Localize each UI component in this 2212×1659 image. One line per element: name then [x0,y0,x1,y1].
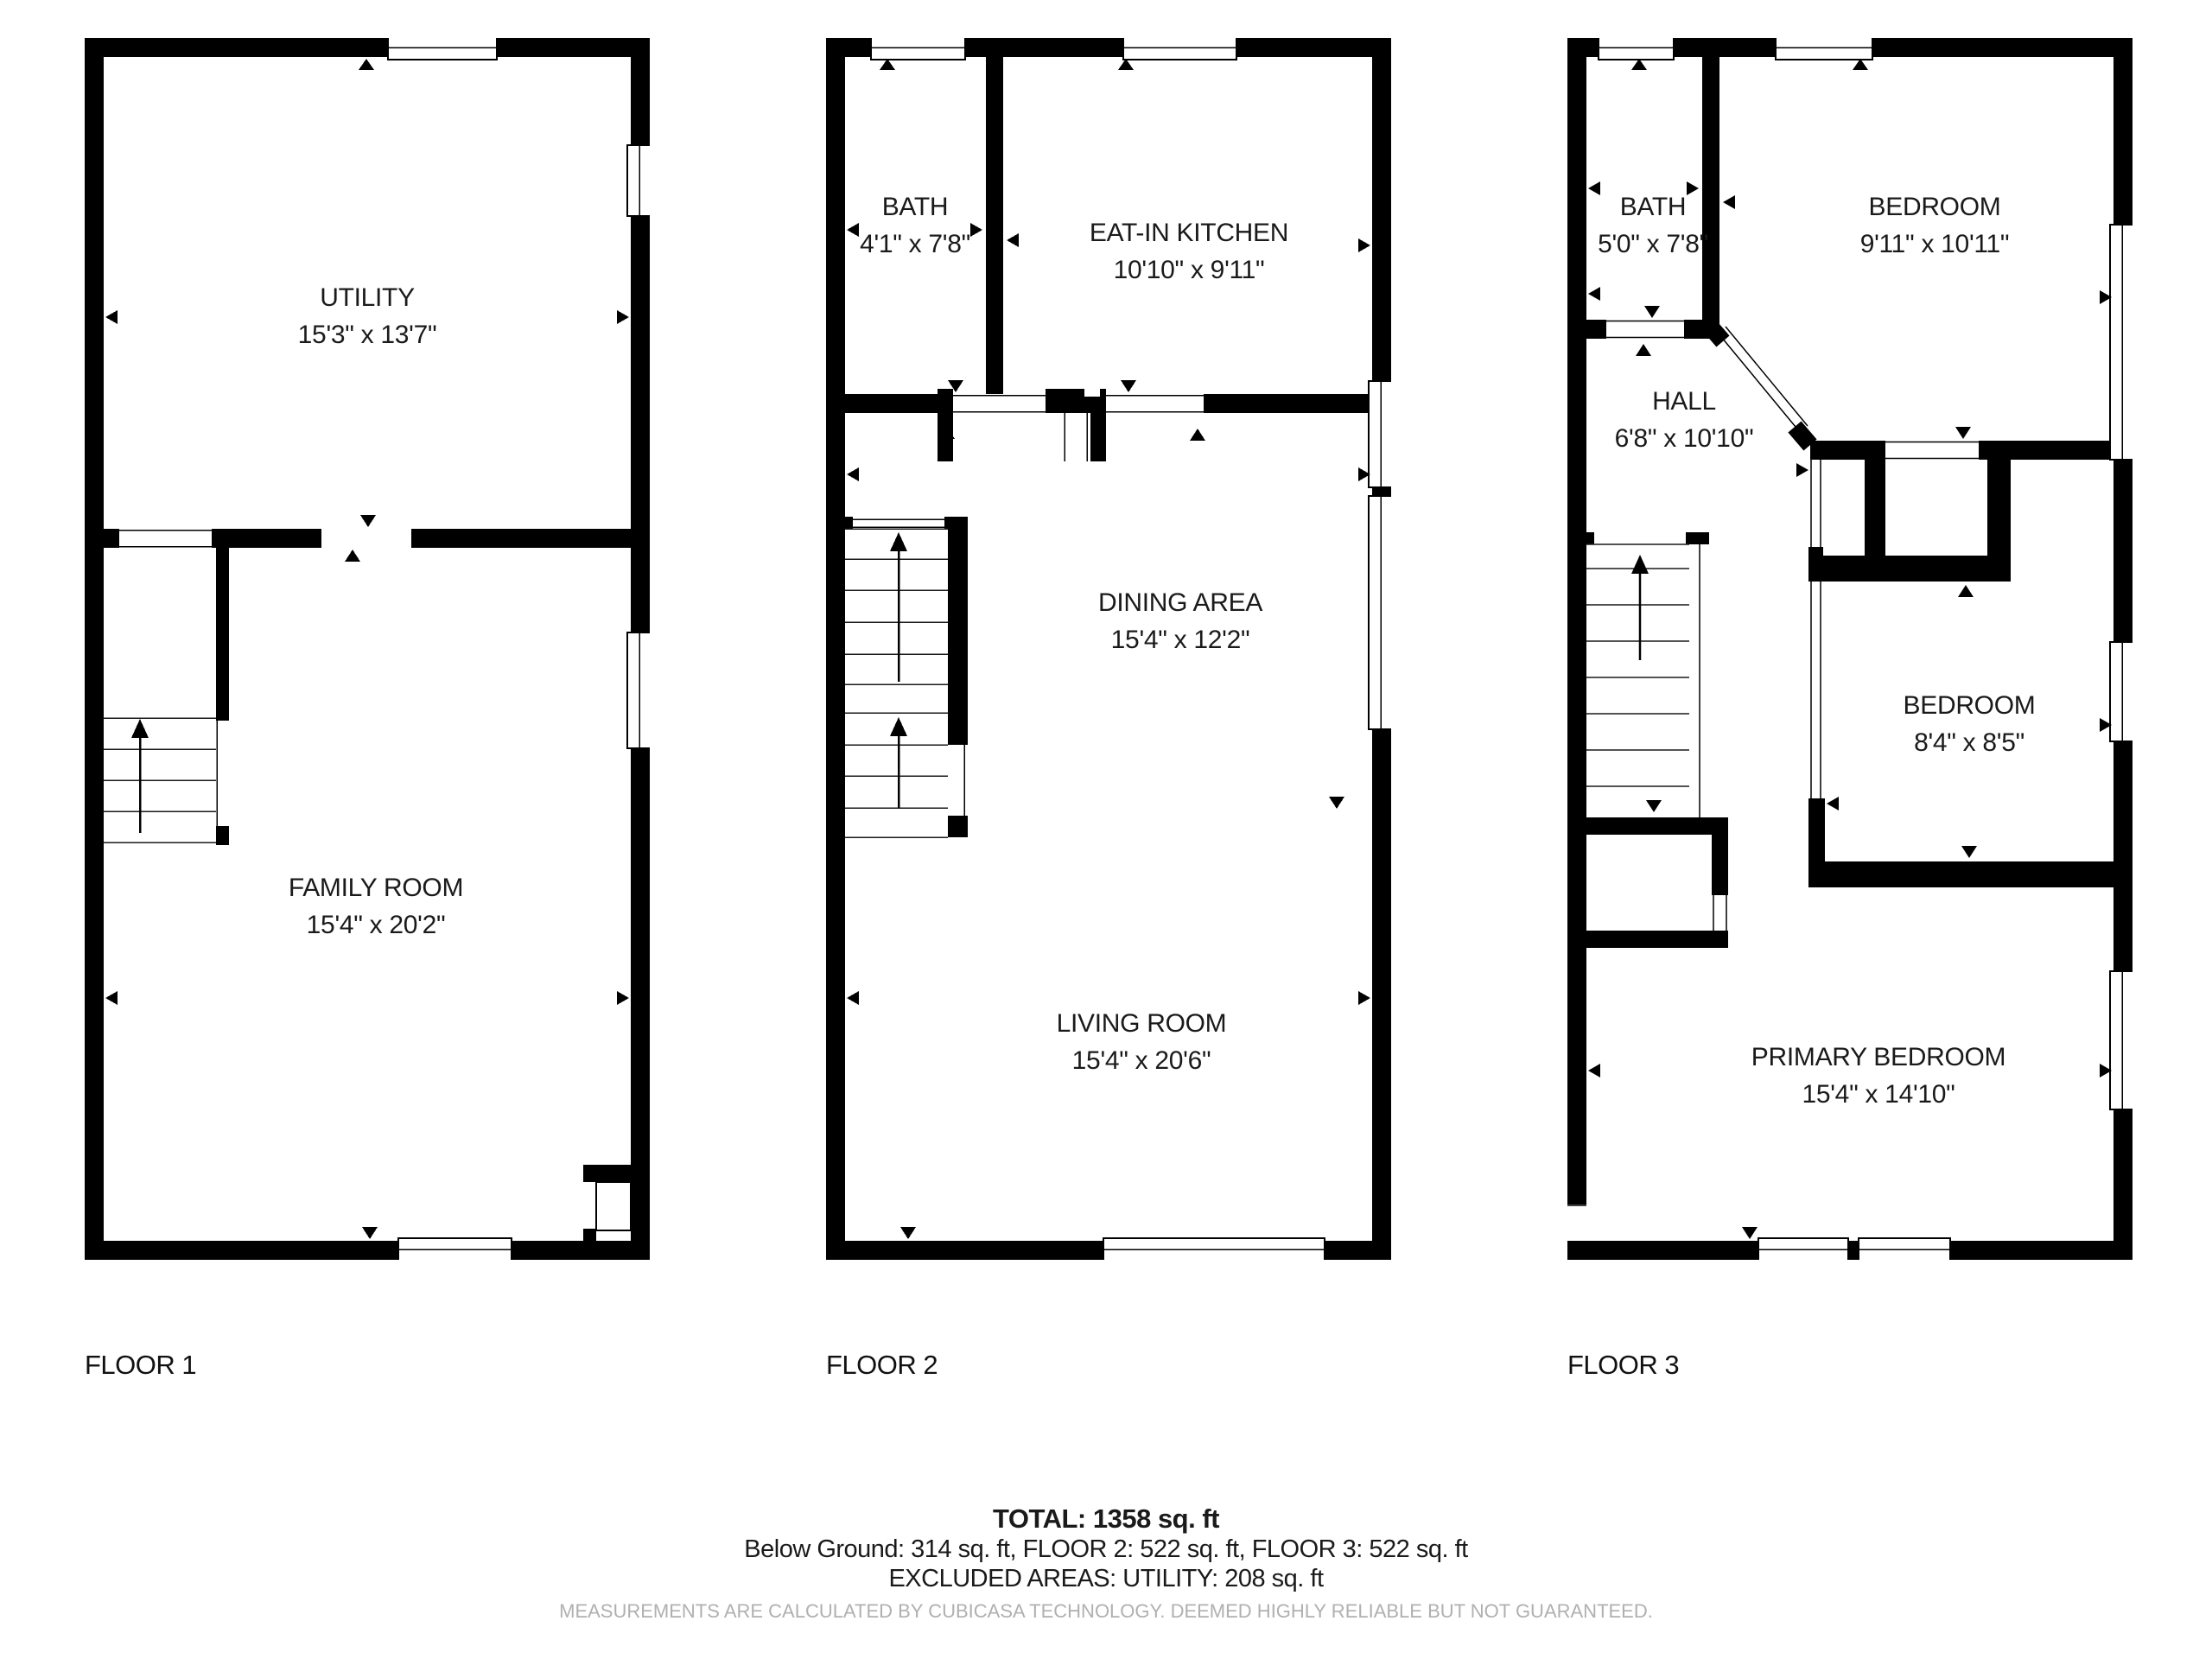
stairs-up-arrow [131,719,149,738]
door-marker-icon [1190,429,1205,441]
room-label-bedroom-2: BEDROOM [1904,691,2036,720]
room-label-family-room: FAMILY ROOM [289,874,463,902]
room-label-living-room: LIVING ROOM [1057,1009,1227,1038]
window [1859,1238,1950,1260]
room-dims-living-room: 15'4" x 20'6" [1072,1046,1211,1075]
dim-arrow-icon [617,310,629,324]
floor1-markers [105,59,629,1239]
floorplan-page: { "floors": [ { "label": "FLOOR 1", "roo… [0,0,2212,1659]
dim-arrow-icon [847,467,859,481]
dim-arrow-icon [1796,463,1808,477]
floor1-room-labels: UTILITY 15'3" x 13'7" FAMILY ROOM 15'4" … [289,283,463,939]
room-dims-hall: 6'8" x 10'10" [1615,424,1754,453]
room-label-utility: UTILITY [320,283,415,312]
dim-arrow-icon [105,991,118,1005]
floor1-windows [388,38,650,1260]
stairs-icon [104,718,217,842]
disclaimer-text: MEASUREMENTS ARE CALCULATED BY CUBICASA … [0,1600,2212,1623]
stairs-icon [1586,544,1700,817]
window-marker-icon [359,59,374,70]
door-marker-icon [1742,1227,1758,1239]
dim-arrow-icon [1827,797,1839,810]
floor-3-caption: FLOOR 3 [1567,1350,1679,1381]
window [1103,1238,1325,1260]
dim-arrow-icon [1358,991,1370,1005]
dim-arrow-icon [1588,1064,1600,1077]
dim-arrow-icon [1007,233,1019,247]
window [1369,381,1391,487]
floor-1-caption: FLOOR 1 [85,1350,196,1381]
window [388,38,497,60]
room-dims-bath: 4'1" x 7'8" [860,230,970,258]
total-area: TOTAL: 1358 sq. ft [0,1505,2212,1532]
door-marker-icon [1121,380,1136,392]
door-marker-icon [362,1227,378,1239]
floor-plan-3: BATH 5'0" x 7'8" BEDROOM 9'11" x 10'11" … [1567,38,2133,1260]
floor3-walls [1567,38,2133,1260]
window [871,38,965,60]
dim-arrow-icon [1687,181,1699,195]
opening-marker-icon [345,550,360,562]
dim-arrow-icon [617,991,629,1005]
door-marker-icon [1636,344,1651,356]
window [627,145,650,216]
room-label-bath: BATH [882,193,949,221]
room-label-hall: HALL [1652,387,1716,416]
window [627,632,650,748]
closet-door [596,1182,631,1230]
room-label-primary-bedroom: PRIMARY BEDROOM [1751,1043,2005,1071]
room-label-bedroom-1: BEDROOM [1869,193,2001,221]
floor-2-caption: FLOOR 2 [826,1350,938,1381]
excluded-areas: EXCLUDED AREAS: UTILITY: 208 sq. ft [0,1567,2212,1592]
window [1123,38,1236,60]
dim-arrow-icon [1723,195,1735,209]
room-label-bath: BATH [1620,193,1687,221]
floor3-windows [1599,38,2133,1260]
window [2110,225,2133,460]
dim-arrow-icon [847,991,859,1005]
window [1369,496,1391,729]
stairs-up-arrow [890,532,907,551]
stairs-up-arrow [890,717,907,736]
door-marker-icon [1955,427,1971,439]
floor-plan-2: BATH 4'1" x 7'8" EAT-IN KITCHEN 10'10" x… [826,38,1391,1260]
area-summary: TOTAL: 1358 sq. ft Below Ground: 314 sq.… [0,1505,2212,1596]
opening-marker-icon [1961,846,1977,858]
dim-arrow-icon [105,310,118,324]
room-dims-bedroom-2: 8'4" x 8'5" [1914,728,2024,757]
room-dims-family-room: 15'4" x 20'2" [307,911,446,939]
window [2110,971,2133,1109]
room-dims-primary-bedroom: 15'4" x 14'10" [1802,1080,1955,1109]
opening-marker-icon [360,515,376,527]
room-dims-dining-area: 15'4" x 12'2" [1111,626,1250,654]
floor-plan-1: UTILITY 15'3" x 13'7" FAMILY ROOM 15'4" … [85,38,650,1260]
dim-arrow-icon [1358,238,1370,252]
door-marker-icon [1958,585,1974,597]
dim-arrow-icon [1588,287,1600,301]
dim-arrow-icon [1588,181,1600,195]
window [398,1238,512,1260]
dim-arrow-icon [970,223,982,237]
room-dims-bedroom-1: 9'11" x 10'11" [1860,230,2010,258]
stairs-icon [845,529,964,837]
stairs-up-arrow [1631,555,1649,574]
room-dims-utility: 15'3" x 13'7" [298,321,437,349]
floor3-room-labels: BATH 5'0" x 7'8" BEDROOM 9'11" x 10'11" … [1598,193,2035,1109]
window [1758,1238,1848,1260]
floor2-door-openings [853,396,1204,1259]
door-marker-icon [900,1227,916,1239]
window [1599,38,1674,60]
window [2110,642,2133,741]
dim-arrow-icon [847,223,859,237]
room-dims-bath: 5'0" x 7'8" [1598,230,1708,258]
window [1776,38,1872,60]
room-label-dining-area: DINING AREA [1098,588,1262,617]
floor1-walls [85,38,650,1260]
room-label-eat-in-kitchen: EAT-IN KITCHEN [1090,219,1288,247]
opening-marker-icon [1329,797,1344,809]
stairs-down-marker [1646,800,1662,812]
room-dims-eat-in-kitchen: 10'10" x 9'11" [1114,256,1265,284]
door-marker-icon [1644,306,1660,318]
area-breakdown: Below Ground: 314 sq. ft, FLOOR 2: 522 s… [0,1537,2212,1562]
floor2-room-labels: BATH 4'1" x 7'8" EAT-IN KITCHEN 10'10" x… [860,193,1288,1075]
